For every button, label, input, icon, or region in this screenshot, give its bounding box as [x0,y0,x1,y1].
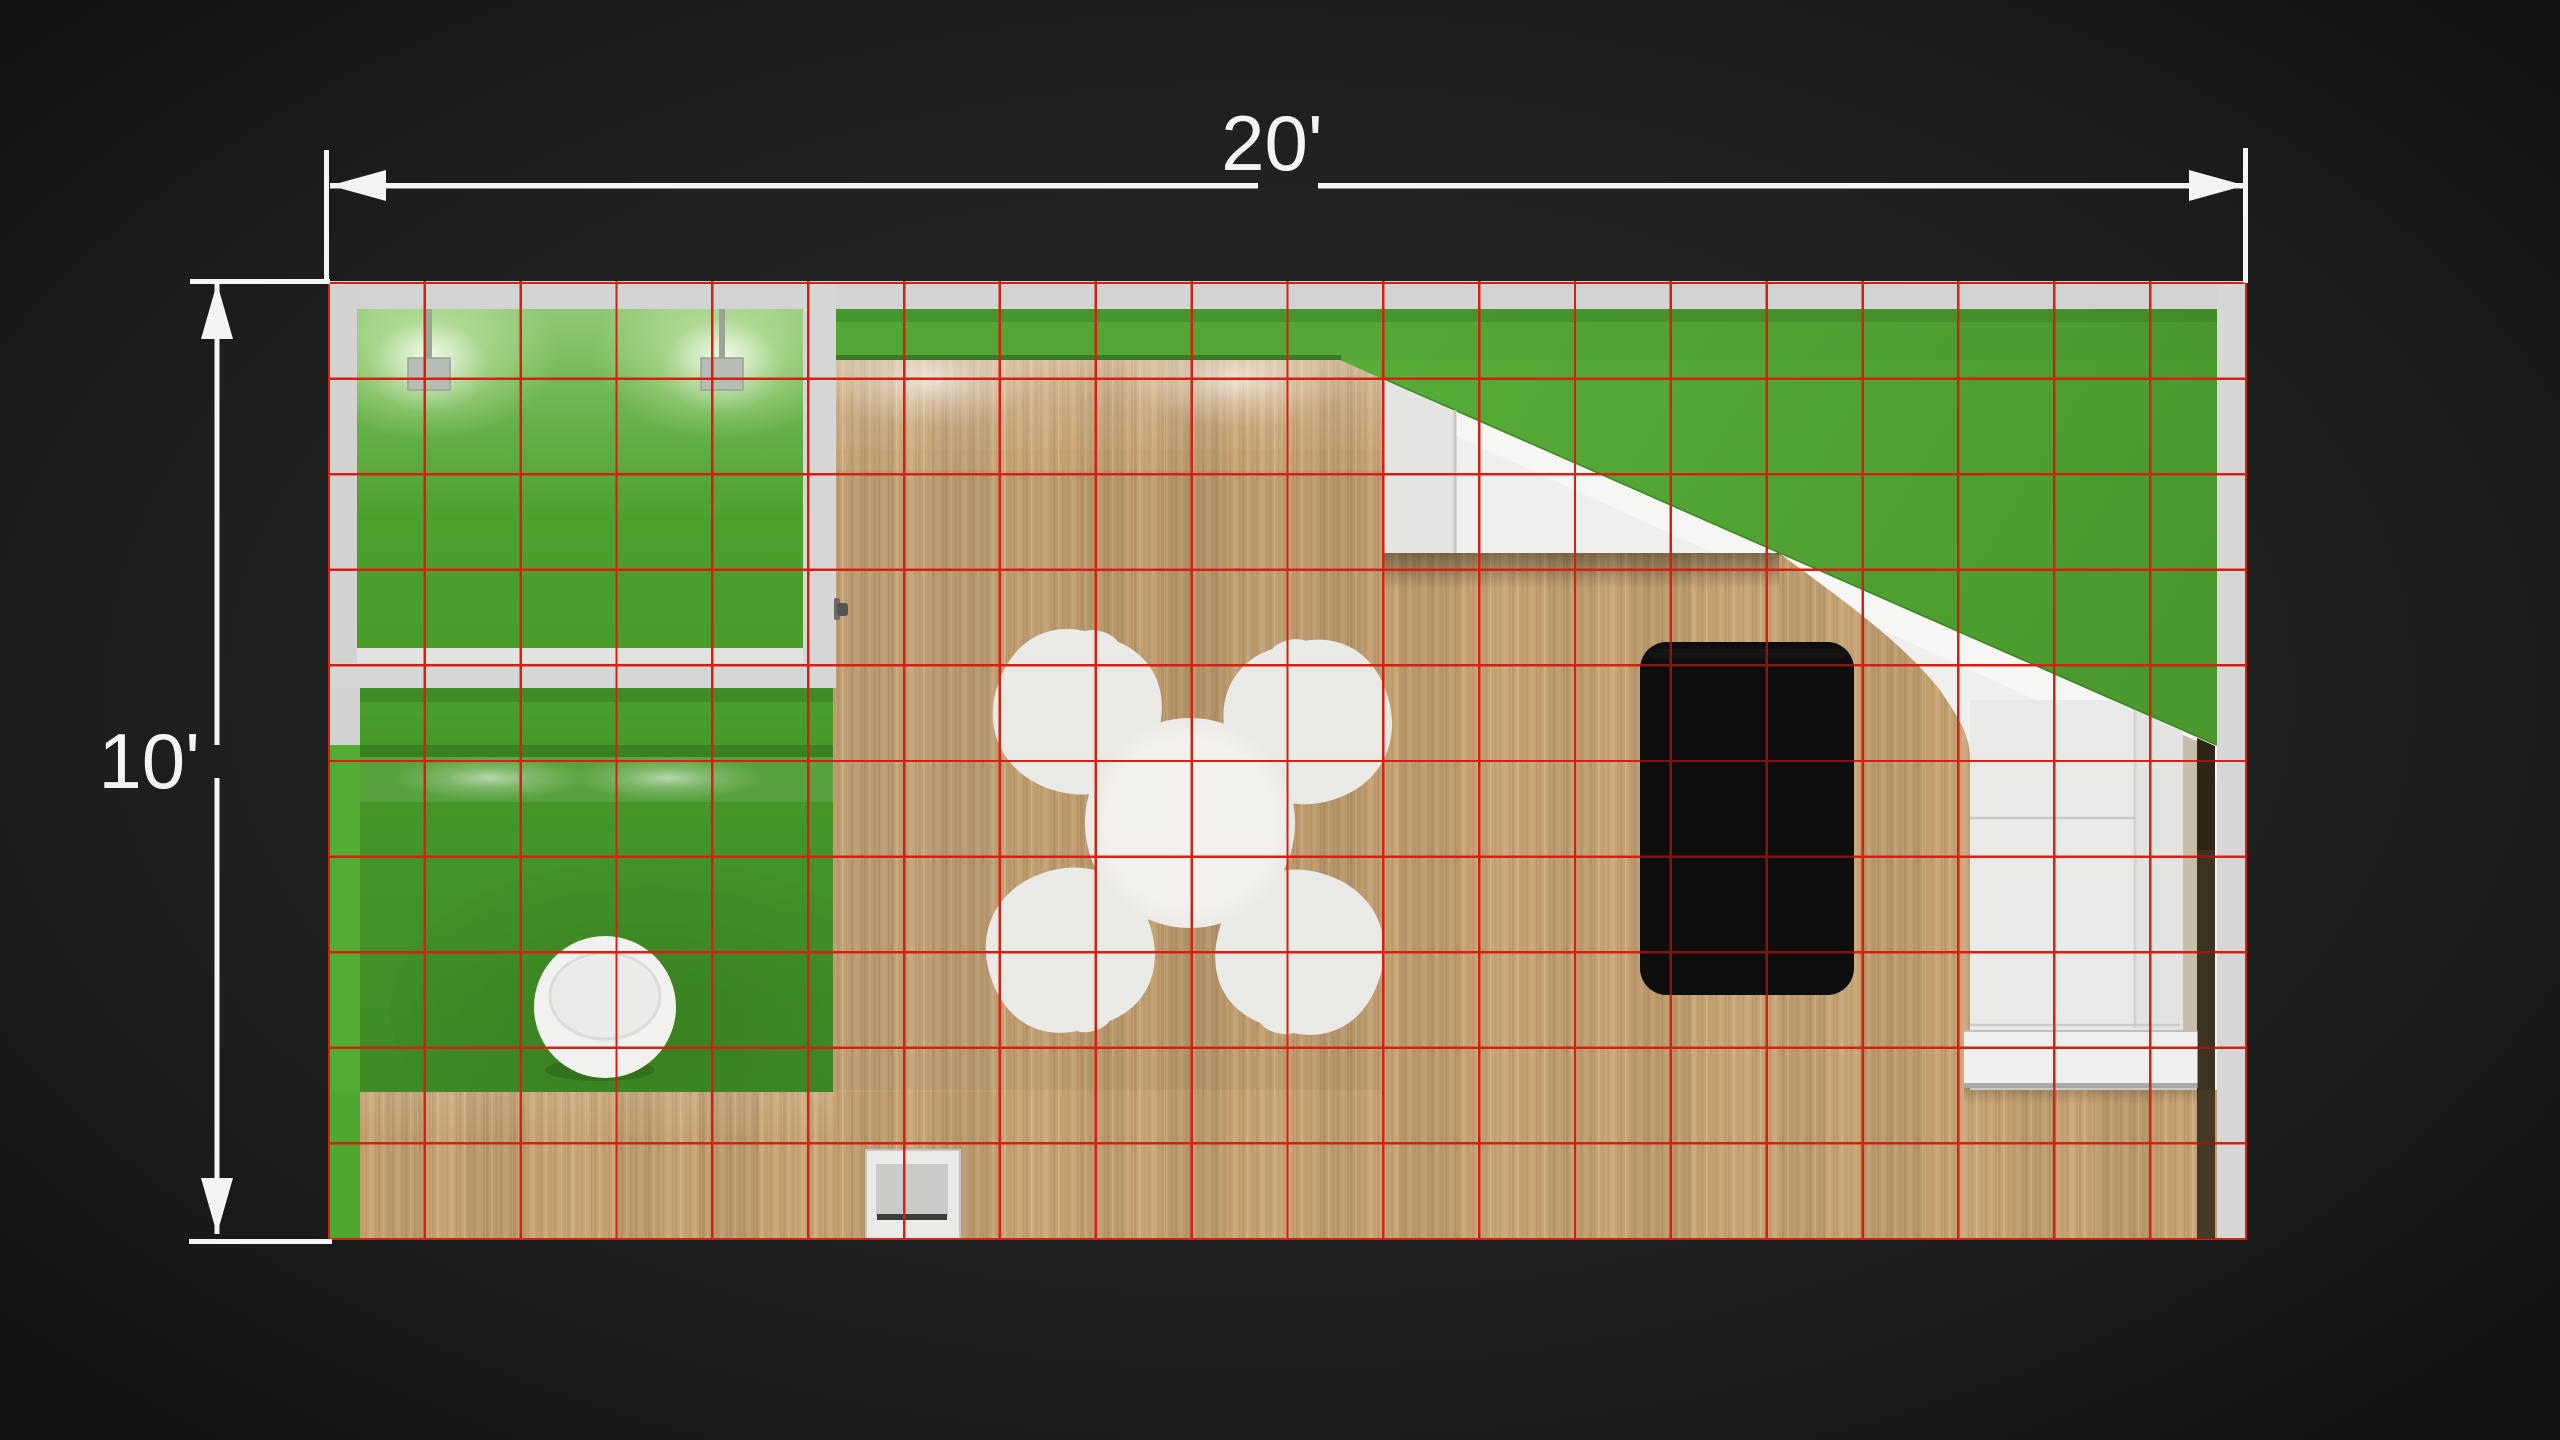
svg-text:20': 20' [1221,99,1323,187]
svg-text:10': 10' [98,717,200,805]
